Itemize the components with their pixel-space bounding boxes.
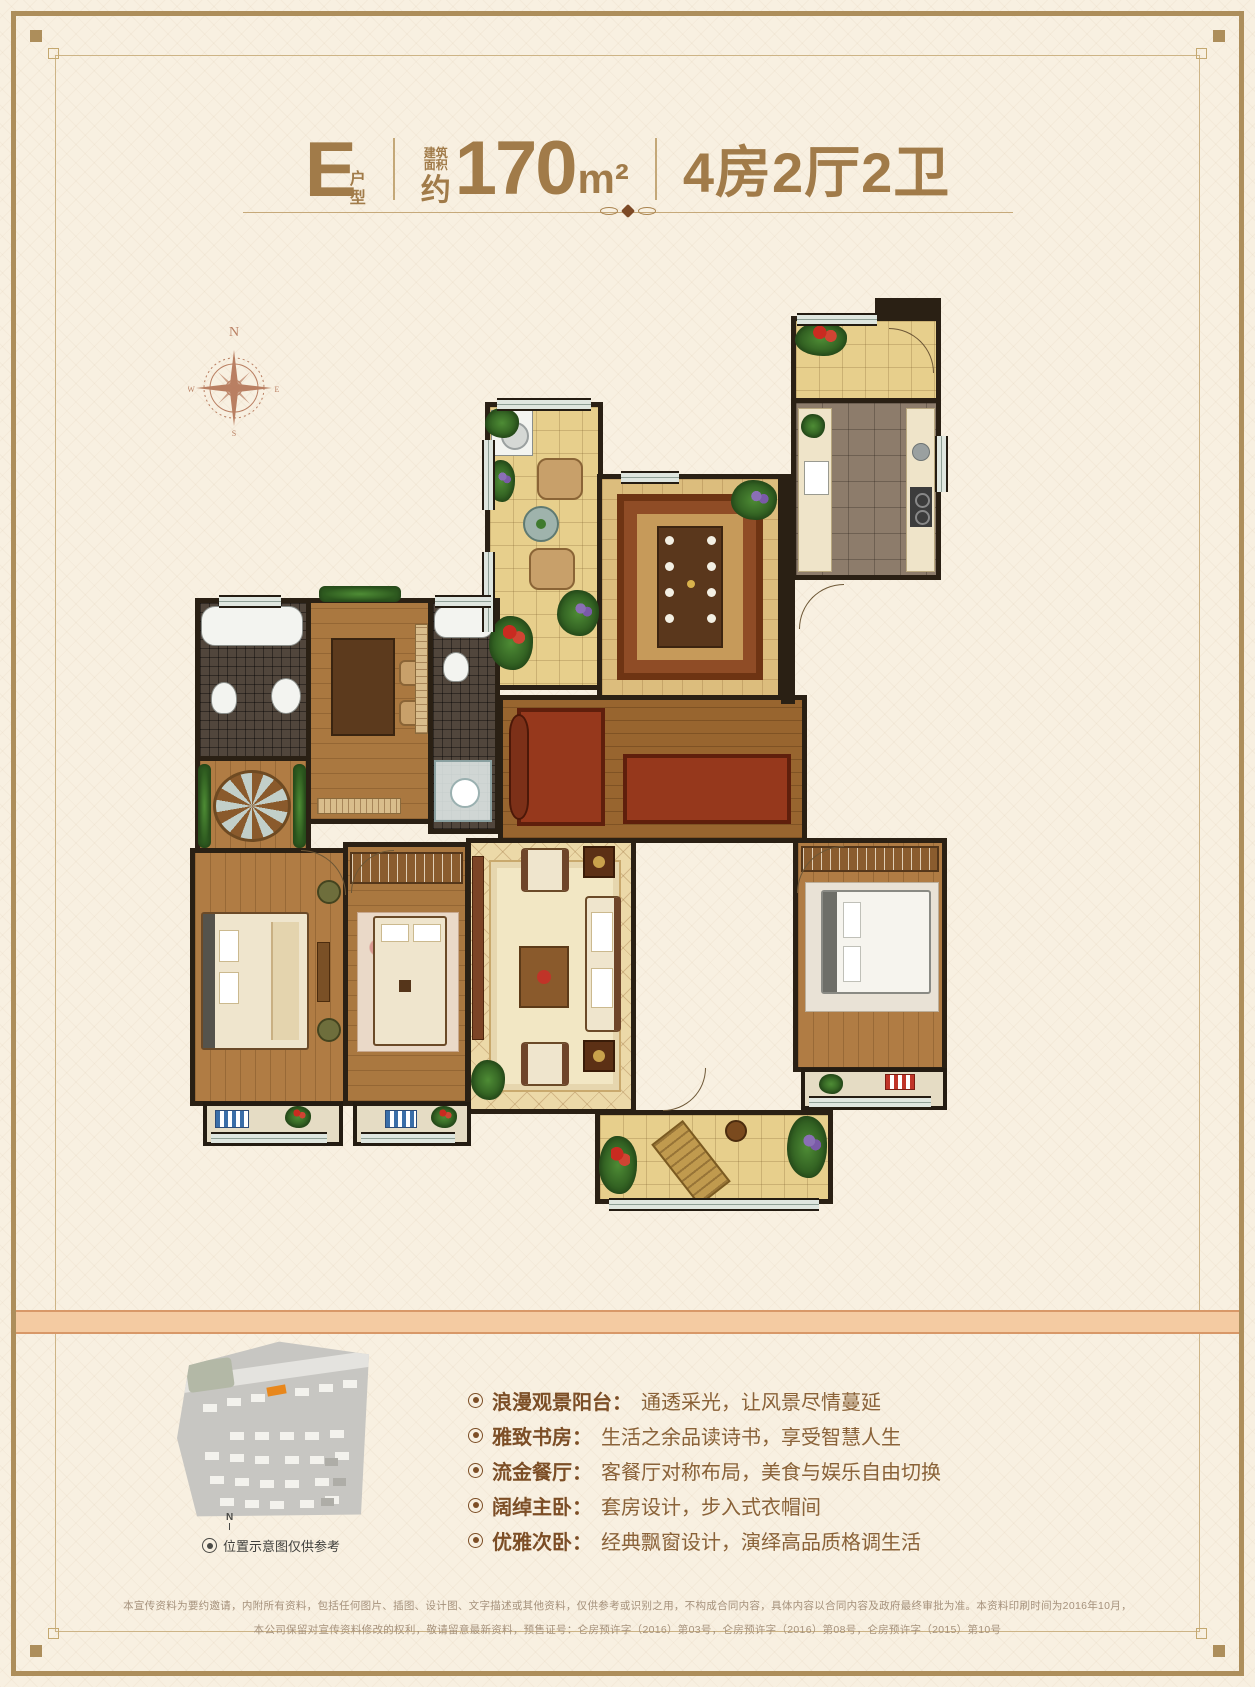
balcony-chair xyxy=(529,548,575,590)
disclaimer-line1: 本宣传资料为要约邀请，内附所有资料，包括任何图片、插图、设计图、文字描述或其他资… xyxy=(0,1598,1255,1613)
kitchen-sink xyxy=(804,461,829,495)
closet-plant xyxy=(293,764,306,848)
window xyxy=(482,552,495,632)
toilet-master xyxy=(211,682,237,714)
feature-item: 阔绰主卧： 套房设计，步入式衣帽间 xyxy=(468,1491,941,1519)
plant xyxy=(471,1060,505,1100)
wall-segment xyxy=(781,474,795,704)
kitchen-door-arc xyxy=(799,584,844,629)
side-table xyxy=(583,846,615,878)
feature-item: 流金餐厅： 客餐厅对称布局，美食与娱乐自由切换 xyxy=(468,1456,941,1484)
sitemap-caption-text: 位置示意图仅供参考 xyxy=(223,1536,340,1555)
basin-master xyxy=(271,678,301,714)
area-approx: 约 xyxy=(421,175,451,207)
side-table xyxy=(583,1040,615,1072)
sitemap-buildings-dark xyxy=(325,1458,338,1466)
sitemap xyxy=(175,1338,375,1520)
header-rule-ornament xyxy=(600,206,656,216)
sitemap-north-label: N xyxy=(226,1512,233,1523)
feature-bullet-icon xyxy=(468,1533,483,1548)
unit-type-suffix: 户型 xyxy=(343,170,367,208)
shower-2 xyxy=(434,760,492,822)
hall-console xyxy=(509,714,529,820)
feature-item: 优雅次卧： 经典飘窗设计，演绎高品质格调生活 xyxy=(468,1526,941,1554)
window xyxy=(935,436,948,492)
feature-bullet-icon xyxy=(468,1498,483,1513)
kitchen-counter-right xyxy=(906,408,935,572)
poster-page: E 户型 建筑 面积 约 170 m² 4房2厅2卫 xyxy=(0,0,1255,1687)
tv-cabinet xyxy=(472,856,484,1040)
armchair-bottom xyxy=(521,1042,569,1086)
window xyxy=(219,595,281,608)
window xyxy=(621,471,679,484)
bedroom-round-rug xyxy=(317,1018,341,1042)
hall-rug xyxy=(517,708,605,826)
sitemap-green xyxy=(185,1357,235,1393)
window xyxy=(361,1132,455,1145)
corner-ornament xyxy=(30,1645,42,1657)
corner-ornament xyxy=(1213,30,1225,42)
study-window-planter xyxy=(319,586,401,602)
toilet-2 xyxy=(443,652,469,682)
study-bookshelf-low xyxy=(317,798,401,814)
header-divider xyxy=(655,138,657,200)
study-bookshelf xyxy=(415,624,428,734)
window xyxy=(609,1198,819,1211)
plant xyxy=(285,1106,311,1128)
bathtub-master xyxy=(201,606,303,646)
window xyxy=(211,1132,327,1145)
dining-plates xyxy=(665,536,674,545)
wall-segment xyxy=(875,298,941,318)
kitchen-stove xyxy=(910,487,932,527)
plant xyxy=(599,1136,637,1194)
feature-item: 浪漫观景阳台： 通透采光，让风景尽情蔓延 xyxy=(468,1386,941,1414)
window xyxy=(482,440,495,510)
sitemap-boundary xyxy=(175,1338,375,1520)
kitchen-sink-round xyxy=(912,443,930,461)
armchair-top xyxy=(521,848,569,892)
dining-table xyxy=(657,526,723,648)
window xyxy=(797,313,877,326)
sofa xyxy=(585,896,621,1032)
corridor-rug xyxy=(623,754,791,824)
area-unit: m² xyxy=(578,155,629,203)
balcony-side-table xyxy=(725,1120,747,1142)
feature-bullet-icon xyxy=(468,1393,483,1408)
plant xyxy=(819,1074,843,1094)
plant xyxy=(795,322,847,356)
master-bed xyxy=(201,912,309,1050)
window xyxy=(809,1096,931,1109)
bay-towel xyxy=(215,1110,249,1128)
bedroom2-bed xyxy=(373,916,447,1046)
area-value: 170 xyxy=(455,131,576,207)
dining-centerpiece xyxy=(687,580,695,588)
feature-item: 雅致书房： 生活之余品读诗书，享受智慧人生 xyxy=(468,1421,941,1449)
bay-towel xyxy=(385,1110,417,1128)
section-divider-band xyxy=(16,1310,1239,1334)
sitemap-highlighted-building xyxy=(266,1384,286,1396)
window xyxy=(497,398,591,411)
plant xyxy=(485,408,519,438)
plant xyxy=(801,414,825,438)
corner-ornament xyxy=(1213,1645,1225,1657)
closet-plant xyxy=(198,764,211,848)
bedroom-bench xyxy=(317,942,330,1002)
plant xyxy=(787,1116,827,1178)
disclaimer-line2: 本公司保留对宣传资料修改的权利，敬请留意最新资料，预售证号：仑房预许字（2016… xyxy=(0,1622,1255,1637)
study-desk xyxy=(331,638,395,736)
corner-ornament xyxy=(1196,48,1207,59)
corner-ornament xyxy=(30,30,42,42)
bedroom3-bed xyxy=(821,890,931,994)
balcony-table xyxy=(523,506,559,542)
area-label: 建筑 面积 约 xyxy=(421,147,451,207)
balcony-chair xyxy=(537,458,583,500)
room-layout-text: 4房2厅2卫 xyxy=(683,128,950,209)
header-divider xyxy=(393,138,395,200)
sitemap-caption: 位置示意图仅供参考 xyxy=(202,1536,340,1555)
balcony-door-arc xyxy=(663,1068,706,1111)
floorplan xyxy=(185,290,957,1208)
feature-list: 浪漫观景阳台： 通透采光，让风景尽情蔓延 雅致书房： 生活之余品读诗书，享受智慧… xyxy=(468,1386,941,1561)
plant xyxy=(731,480,777,520)
header-rule xyxy=(243,212,1013,213)
bay-towel xyxy=(885,1074,915,1090)
closet-round-rug xyxy=(213,770,291,842)
plant xyxy=(557,590,599,636)
unit-header: E 户型 建筑 面积 约 170 m² 4房2厅2卫 xyxy=(0,128,1255,209)
window xyxy=(435,595,491,608)
plant xyxy=(489,616,533,670)
sitemap-caption-icon xyxy=(202,1538,217,1553)
sitemap-buildings xyxy=(203,1404,217,1412)
feature-bullet-icon xyxy=(468,1428,483,1443)
feature-bullet-icon xyxy=(468,1463,483,1478)
coffee-table xyxy=(519,946,569,1008)
plant xyxy=(431,1106,457,1128)
corner-ornament xyxy=(48,48,59,59)
